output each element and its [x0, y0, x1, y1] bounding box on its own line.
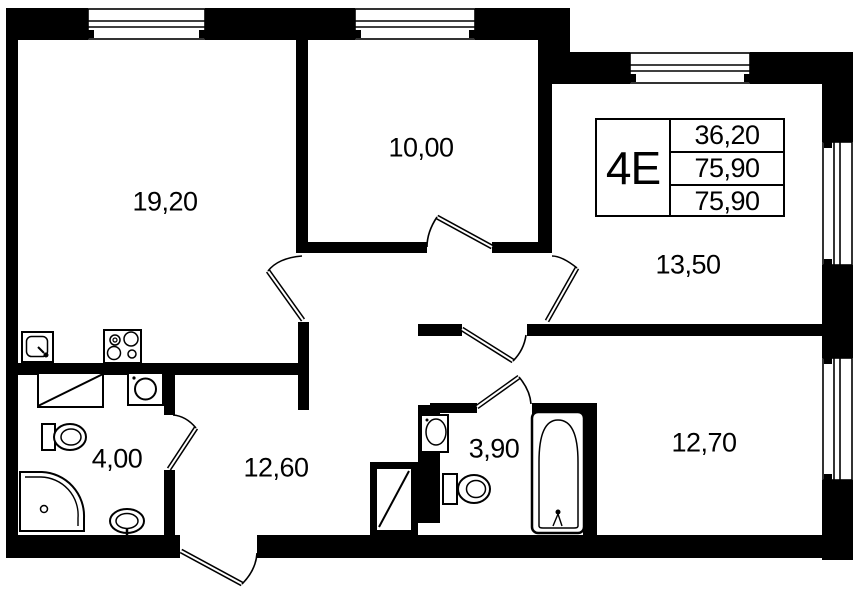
title-block: 4Е 36,20 75,90 75,90 — [595, 118, 785, 217]
area-value-row: 36,20 — [671, 120, 783, 153]
unit-type-label: 4Е — [597, 120, 671, 215]
door-bathroom-main — [169, 415, 196, 469]
door-bedroom-corner — [547, 256, 577, 321]
ventilation-shaft-icon — [370, 462, 418, 537]
door-bedroom-ensuite — [462, 329, 526, 361]
washbasin-icon — [421, 415, 448, 452]
area-label-bedroom-small: 10,00 — [388, 133, 453, 164]
entrance-door — [181, 551, 257, 584]
toilet-icon — [443, 474, 490, 504]
shower-icon — [20, 472, 84, 531]
bathtub-icon — [532, 412, 584, 533]
area-label-bathroom-ensuite: 3,90 — [469, 434, 520, 465]
area-label-bathroom-main: 4,00 — [92, 444, 143, 475]
washing-machine-icon — [128, 373, 163, 405]
door-living-room — [268, 256, 303, 320]
kitchen-sink-icon — [22, 332, 53, 362]
window — [823, 142, 852, 265]
area-value-row: 75,90 — [671, 186, 783, 217]
area-value-row: 75,90 — [671, 153, 783, 186]
door-bathroom-ensuite — [477, 377, 531, 407]
window — [355, 9, 475, 39]
title-block-values: 36,20 75,90 75,90 — [671, 120, 783, 215]
door-bedroom-small — [427, 217, 492, 247]
area-label-hallway: 12,60 — [243, 453, 308, 484]
floor-plan: 19,20 10,00 13,50 12,70 12,60 4,00 3,90 … — [0, 0, 861, 600]
area-label-living-room: 19,20 — [132, 187, 197, 218]
stove-icon — [104, 330, 141, 363]
window — [823, 358, 852, 480]
washbasin-icon — [110, 509, 144, 536]
window — [88, 9, 205, 39]
toilet-icon — [42, 424, 86, 450]
plan-drawing — [0, 0, 861, 600]
wardrobe-icon — [38, 373, 103, 407]
window — [630, 53, 750, 83]
area-label-bedroom-ensuite: 12,70 — [671, 428, 736, 459]
area-label-bedroom-corner: 13,50 — [655, 250, 720, 281]
